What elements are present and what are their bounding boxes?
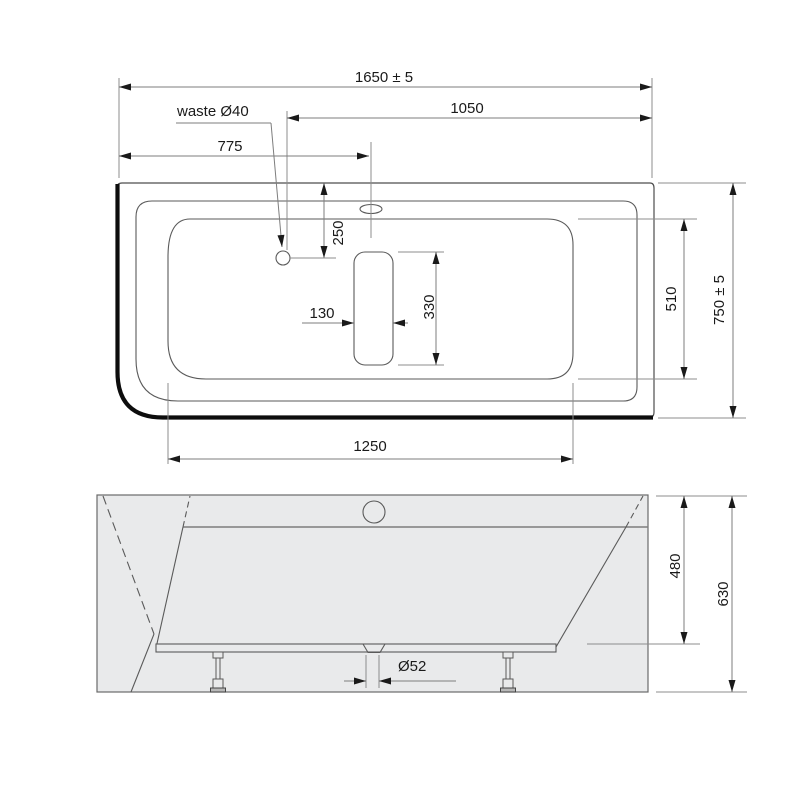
front-view bbox=[97, 495, 648, 692]
foot-block bbox=[213, 679, 223, 688]
foot-base bbox=[211, 688, 226, 692]
dim-overall-length-label: 1650 ± 5 bbox=[355, 69, 413, 86]
technical-drawing-page: 1650 ± 5 1050 775 waste Ø40 250 130 330 … bbox=[0, 0, 800, 800]
dim-cutout-length-label: 330 bbox=[421, 294, 438, 319]
foot-bracket bbox=[213, 652, 223, 658]
bathtub-drawing-canvas: 1650 ± 5 1050 775 waste Ø40 250 130 330 … bbox=[0, 0, 800, 800]
dim-basin-length-label: 1250 bbox=[353, 438, 386, 455]
foot-bracket bbox=[503, 652, 513, 658]
dim-overall-width-label: 750 ± 5 bbox=[711, 275, 728, 325]
plan-view-dimensions: 1650 ± 5 1050 775 waste Ø40 250 130 330 … bbox=[119, 69, 746, 464]
dim-body-height-label: 480 bbox=[667, 553, 684, 578]
plan-view bbox=[117, 183, 654, 418]
dim-waste-offset-label: 250 bbox=[330, 220, 347, 245]
foot-block bbox=[503, 679, 513, 688]
dim-drain-label: Ø52 bbox=[398, 658, 426, 675]
basin-bottom-rim bbox=[156, 644, 556, 652]
foot-leg bbox=[216, 658, 220, 679]
dim-overall-height-label: 630 bbox=[715, 581, 732, 606]
front-body bbox=[97, 495, 648, 692]
waste-label: waste Ø40 bbox=[176, 103, 249, 120]
foot-leg bbox=[506, 658, 510, 679]
basin-cutout bbox=[354, 252, 393, 365]
tub-basin bbox=[168, 219, 573, 379]
dim-cutout-width-label: 130 bbox=[309, 305, 334, 322]
tub-rim bbox=[136, 201, 637, 401]
waste-leader-arrow bbox=[271, 123, 282, 247]
waste-hole bbox=[276, 251, 290, 265]
dim-to-overflow-label: 775 bbox=[217, 138, 242, 155]
dim-basin-width-label: 510 bbox=[663, 286, 680, 311]
foot-base bbox=[501, 688, 516, 692]
dim-to-waste-label: 1050 bbox=[450, 100, 483, 117]
